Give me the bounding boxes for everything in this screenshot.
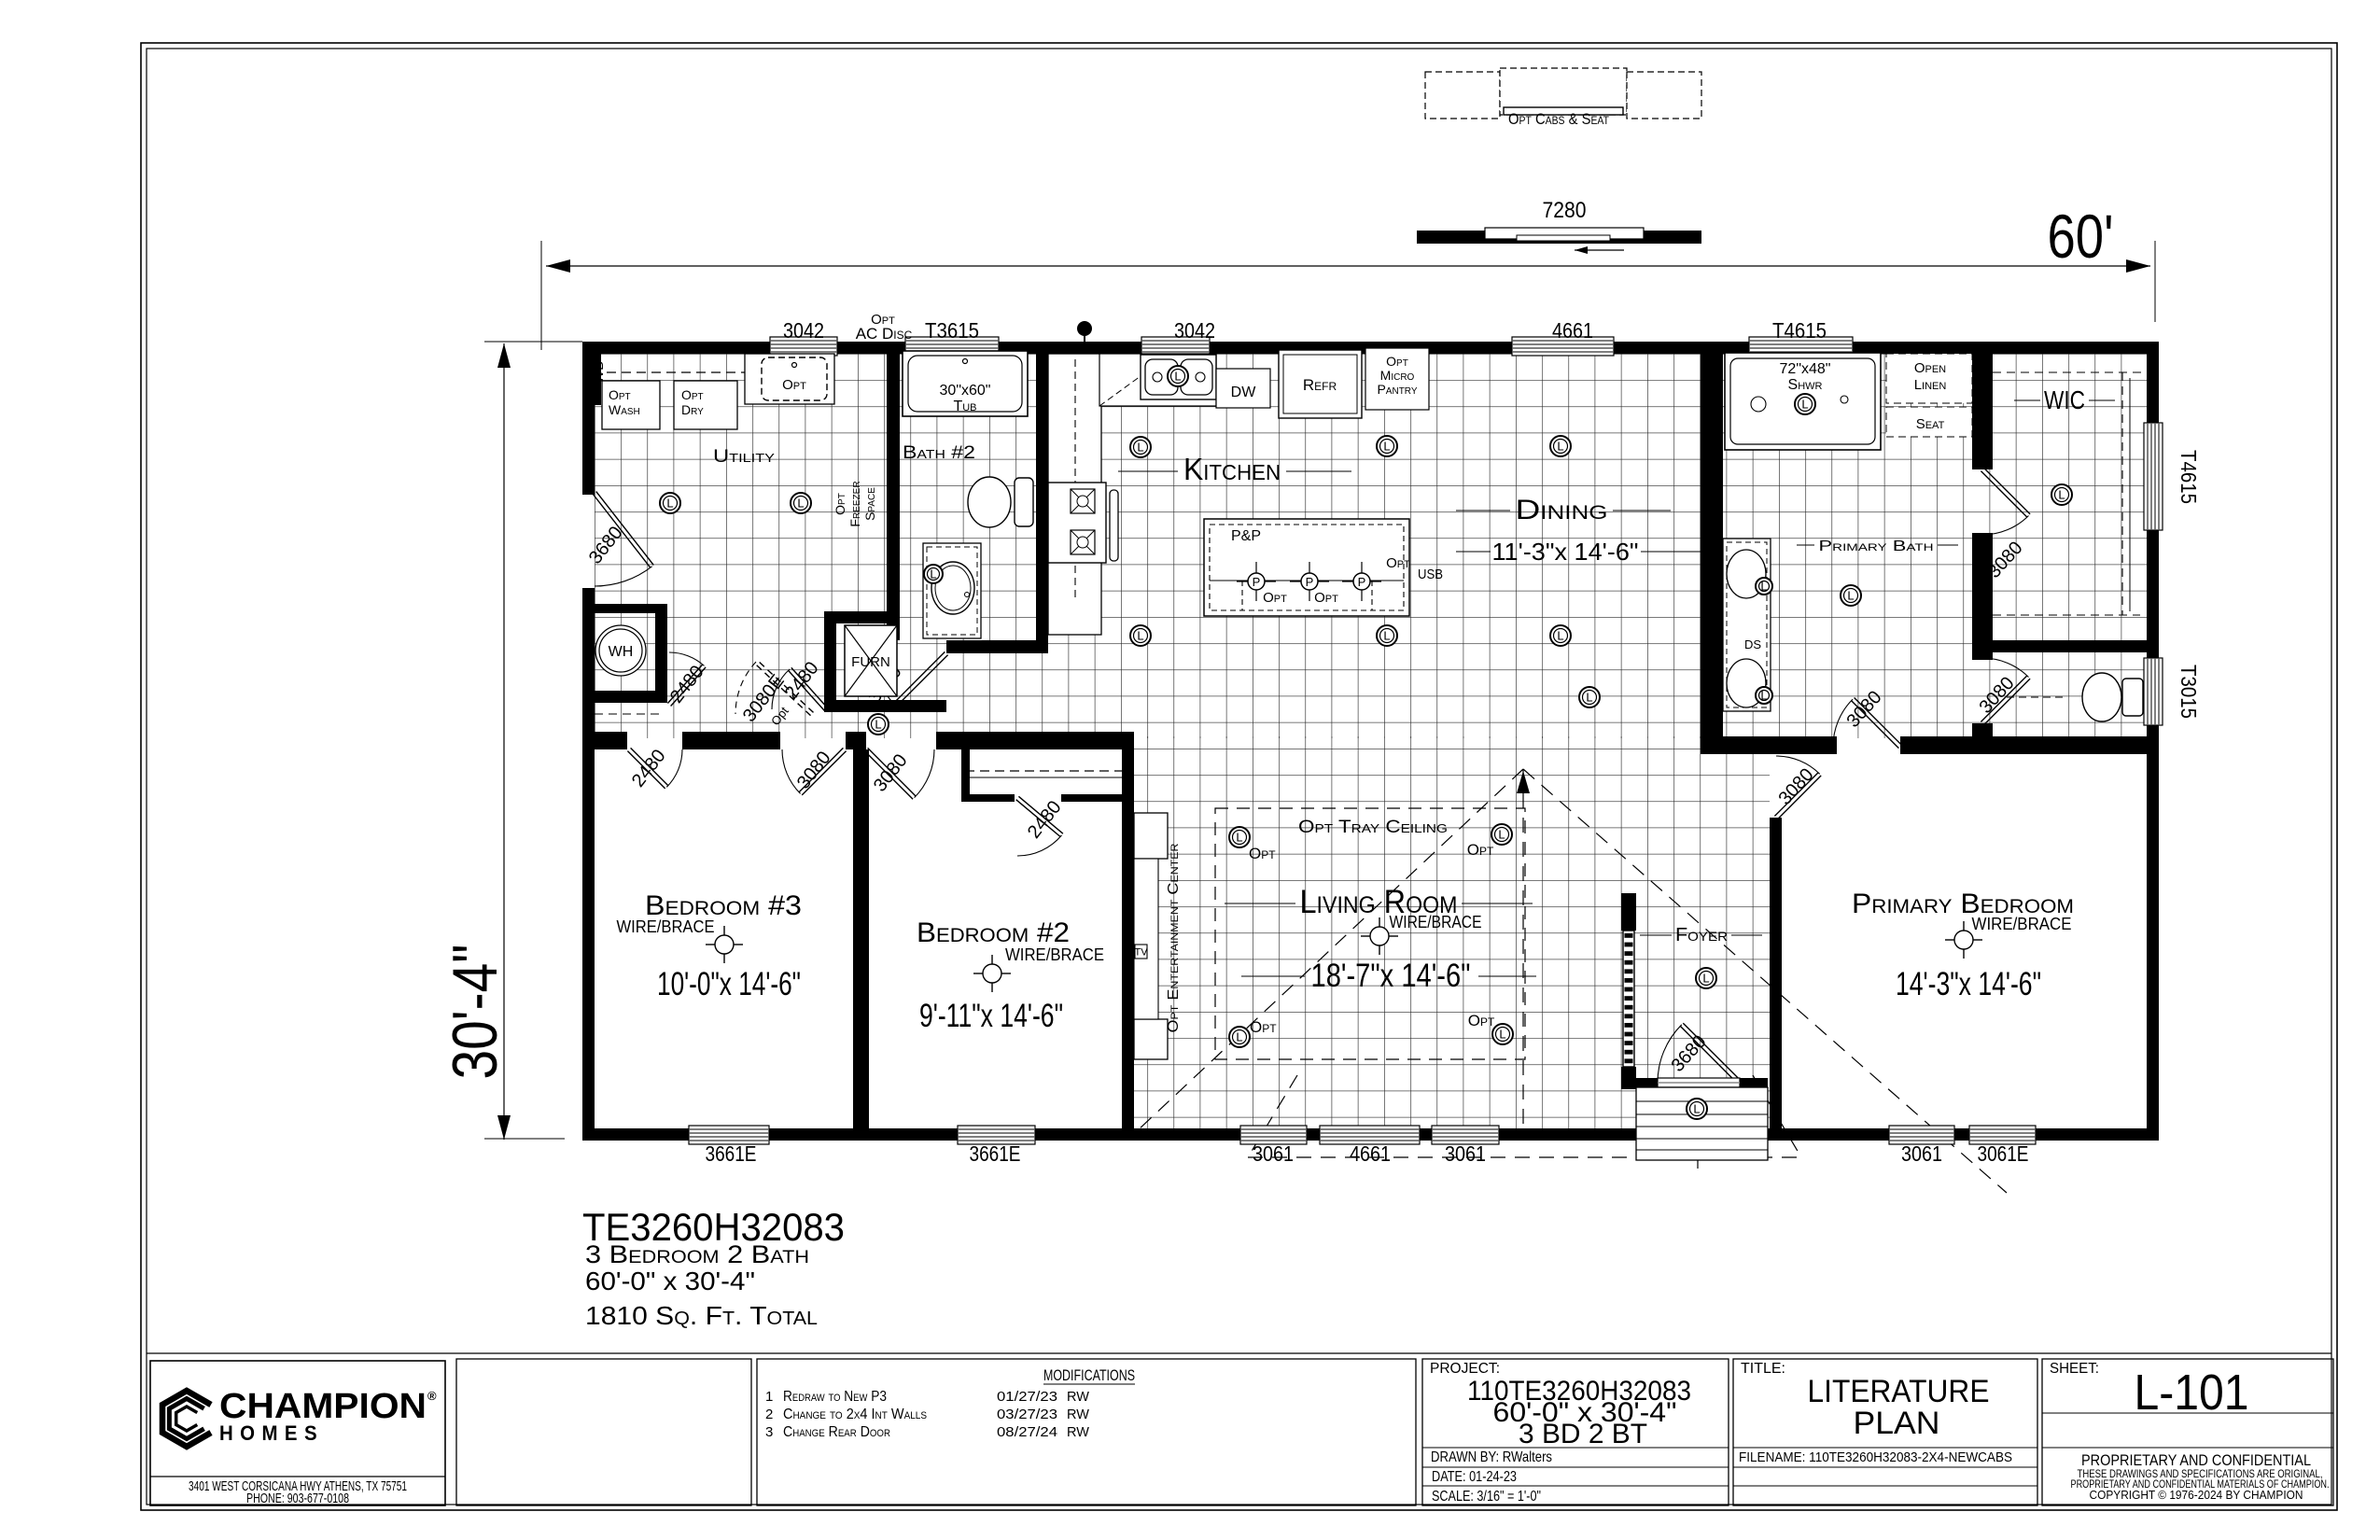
svg-text:L: L: [1702, 972, 1709, 986]
svg-text:Pantry: Pantry: [1377, 382, 1417, 397]
svg-text:08/27/24: 08/27/24: [997, 1425, 1057, 1440]
svg-text:SHEET:: SHEET:: [2050, 1361, 2099, 1377]
svg-text:3061: 3061: [1445, 1141, 1486, 1166]
svg-text:4661: 4661: [1552, 318, 1593, 343]
svg-text:3042: 3042: [1174, 318, 1215, 343]
svg-text:1810 Sq. Ft. Total: 1810 Sq. Ft. Total: [585, 1301, 818, 1330]
svg-text:Kitchen: Kitchen: [1183, 452, 1281, 486]
svg-text:3661E: 3661E: [970, 1141, 1021, 1166]
svg-text:2: 2: [765, 1407, 773, 1422]
svg-text:Opt Tray Ceiling: Opt Tray Ceiling: [1298, 818, 1448, 837]
svg-text:Opt: Opt: [1468, 1012, 1495, 1029]
svg-text:RW: RW: [1067, 1425, 1089, 1440]
svg-text:MODIFICATIONS: MODIFICATIONS: [1043, 1366, 1135, 1384]
svg-text:T4615: T4615: [2177, 450, 2201, 504]
svg-text:WIC: WIC: [2044, 385, 2085, 414]
svg-text:Primary Bath: Primary Bath: [1819, 539, 1934, 554]
svg-text:Refr: Refr: [1303, 376, 1337, 394]
svg-text:L: L: [1174, 370, 1181, 384]
svg-text:L: L: [1847, 589, 1854, 603]
svg-text:60': 60': [2048, 202, 2114, 271]
svg-text:Opt Cabs & Seat: Opt Cabs & Seat: [1508, 110, 1610, 128]
svg-text:FURN: FURN: [851, 654, 890, 670]
svg-text:3061: 3061: [1901, 1141, 1942, 1166]
svg-text:30'-4": 30'-4": [440, 945, 511, 1080]
svg-text:L: L: [666, 497, 673, 511]
svg-text:Opt: Opt: [609, 387, 631, 402]
svg-text:T3015: T3015: [2177, 665, 2201, 719]
svg-text:L: L: [1586, 691, 1592, 705]
svg-text:Change Rear Door: Change Rear Door: [783, 1424, 890, 1440]
svg-text:Seat: Seat: [1916, 416, 1945, 432]
svg-text:DRAWN BY: RWalters: DRAWN BY: RWalters: [1431, 1449, 1552, 1465]
svg-text:Bedroom #2: Bedroom #2: [917, 917, 1070, 948]
svg-text:Foyer: Foyer: [1675, 925, 1728, 945]
svg-text:WH: WH: [609, 644, 634, 660]
svg-text:P&P: P&P: [1231, 528, 1261, 544]
svg-text:18'-7"x 14'-6": 18'-7"x 14'-6": [1311, 958, 1471, 994]
svg-text:WIRE/BRACE: WIRE/BRACE: [1005, 945, 1104, 964]
svg-text:FILENAME: 110TE3260H32083-2X4-: FILENAME: 110TE3260H32083-2X4-NEWCABS: [1739, 1449, 2012, 1465]
svg-text:L: L: [1557, 629, 1563, 643]
svg-text:60'-0" x 30'-4": 60'-0" x 30'-4": [585, 1267, 755, 1295]
svg-text:Linen: Linen: [1914, 377, 1947, 393]
svg-text:HOMES: HOMES: [219, 1421, 324, 1445]
svg-text:L: L: [1801, 398, 1808, 412]
svg-text:USB: USB: [1418, 567, 1443, 582]
svg-text:3 Bedroom 2 Bath: 3 Bedroom 2 Bath: [585, 1240, 809, 1268]
svg-text:WIRE/BRACE: WIRE/BRACE: [1390, 913, 1482, 931]
svg-text:L: L: [1557, 440, 1563, 454]
svg-text:CHAMPION: CHAMPION: [219, 1387, 427, 1426]
svg-text:Utility: Utility: [713, 447, 775, 467]
svg-text:SCALE: 3/16" = 1'-0": SCALE: 3/16" = 1'-0": [1432, 1489, 1541, 1505]
svg-text:Opt: Opt: [833, 493, 847, 515]
svg-text:L: L: [797, 497, 804, 511]
svg-text:3 BD 2 BT: 3 BD 2 BT: [1519, 1419, 1647, 1449]
svg-text:L: L: [1499, 1028, 1505, 1042]
svg-text:Opt: Opt: [1263, 590, 1287, 606]
svg-text:03/27/23: 03/27/23: [997, 1407, 1057, 1422]
svg-text:P: P: [1358, 575, 1366, 589]
svg-text:TITLE:: TITLE:: [1741, 1361, 1785, 1377]
svg-text:Opt: Opt: [782, 377, 806, 393]
svg-text:L: L: [930, 567, 936, 581]
svg-text:Micro: Micro: [1380, 368, 1415, 383]
svg-text:Dry: Dry: [681, 402, 704, 417]
svg-text:Opt Entertainment Center: Opt Entertainment Center: [1166, 843, 1182, 1032]
svg-text:11'-3"x 14'-6": 11'-3"x 14'-6": [1492, 538, 1639, 566]
svg-text:Shwr: Shwr: [1788, 377, 1823, 393]
svg-text:3661E: 3661E: [706, 1141, 757, 1166]
svg-text:P: P: [1253, 575, 1261, 589]
svg-text:Wash: Wash: [609, 402, 640, 417]
svg-text:PHONE: 903-677-0108: PHONE: 903-677-0108: [246, 1491, 349, 1506]
svg-text:L: L: [1760, 580, 1767, 594]
svg-text:T3615: T3615: [925, 318, 979, 343]
svg-text:Open: Open: [1914, 360, 1946, 376]
svg-text:Opt: Opt: [1250, 1018, 1277, 1036]
svg-text:L: L: [1137, 629, 1143, 643]
svg-text:3: 3: [765, 1424, 773, 1440]
svg-text:L: L: [2058, 488, 2065, 502]
svg-text:01/27/23: 01/27/23: [997, 1390, 1057, 1405]
svg-text:3042: 3042: [783, 318, 824, 343]
svg-text:L: L: [1137, 441, 1143, 455]
svg-text:LITERATURE: LITERATURE: [1808, 1374, 1990, 1409]
svg-text:®: ®: [427, 1389, 437, 1403]
svg-text:4661: 4661: [1350, 1141, 1391, 1166]
svg-text:COPYRIGHT © 1976-2024 BY CHAMP: COPYRIGHT © 1976-2024 BY CHAMPION: [2090, 1488, 2303, 1502]
svg-text:L: L: [1760, 689, 1767, 703]
svg-text:Change to 2x4 Int Walls: Change to 2x4 Int Walls: [783, 1407, 927, 1422]
svg-text:Opt: Opt: [1314, 590, 1338, 606]
svg-text:P: P: [1306, 575, 1314, 589]
svg-text:Opt: Opt: [681, 387, 704, 402]
svg-text:Opt: Opt: [1386, 354, 1408, 369]
svg-text:Tub: Tub: [953, 399, 976, 414]
svg-text:TV: TV: [1134, 947, 1148, 959]
svg-text:3061E: 3061E: [1978, 1141, 2029, 1166]
svg-text:WIRE/BRACE: WIRE/BRACE: [617, 917, 715, 936]
svg-text:Opt: Opt: [1386, 555, 1410, 571]
svg-text:10'-0"x 14'-6": 10'-0"x 14'-6": [657, 966, 801, 1002]
svg-text:T4615: T4615: [1772, 318, 1827, 343]
svg-text:72"x48": 72"x48": [1780, 361, 1831, 377]
svg-text:DATE: 01-24-23: DATE: 01-24-23: [1432, 1469, 1517, 1485]
svg-text:L: L: [1236, 831, 1242, 845]
svg-text:Dining: Dining: [1516, 495, 1608, 525]
svg-text:9'-11"x 14'-6": 9'-11"x 14'-6": [919, 998, 1063, 1034]
svg-text:DS: DS: [1744, 637, 1761, 651]
svg-text:Opt: Opt: [1249, 845, 1276, 862]
svg-text:WIRE/BRACE: WIRE/BRACE: [1972, 915, 2072, 933]
svg-text:L-101: L-101: [2135, 1365, 2249, 1421]
svg-text:L: L: [875, 718, 881, 732]
svg-text:AC Disc: AC Disc: [856, 325, 913, 343]
svg-text:14'-3"x 14'-6": 14'-3"x 14'-6": [1896, 966, 2041, 1002]
svg-text:7280: 7280: [1543, 198, 1587, 223]
svg-text:L: L: [1236, 1030, 1242, 1044]
svg-text:Freezer: Freezer: [847, 481, 862, 526]
svg-text:Opt: Opt: [1467, 841, 1494, 859]
svg-text:RW: RW: [1067, 1407, 1089, 1422]
svg-text:RW: RW: [1067, 1390, 1089, 1405]
svg-text:L: L: [1383, 629, 1390, 643]
svg-text:Space: Space: [862, 487, 877, 521]
svg-text:30"x60": 30"x60": [940, 383, 991, 399]
svg-text:Redraw to New P3: Redraw to New P3: [783, 1389, 887, 1405]
svg-text:PLAN: PLAN: [1854, 1406, 1940, 1441]
svg-text:Bath #2: Bath #2: [903, 443, 975, 463]
svg-text:L: L: [1693, 1102, 1700, 1116]
svg-text:PROJECT:: PROJECT:: [1430, 1361, 1500, 1377]
svg-text:L: L: [1383, 440, 1390, 454]
svg-text:L: L: [1498, 828, 1505, 842]
svg-text:DW: DW: [1231, 385, 1257, 400]
svg-text:3061: 3061: [1253, 1141, 1294, 1166]
svg-text:1: 1: [765, 1389, 773, 1405]
